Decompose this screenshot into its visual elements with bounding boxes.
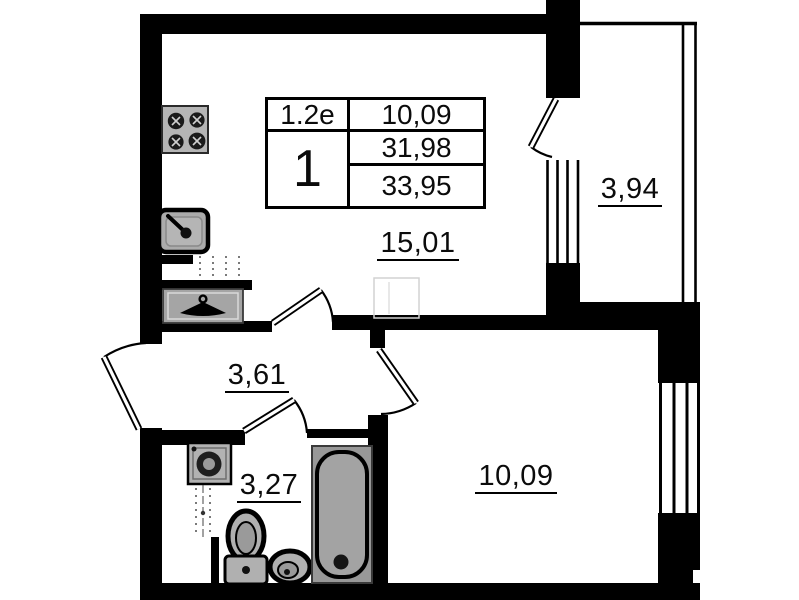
kitchen-counter-marks <box>200 256 239 277</box>
living-room-door <box>273 290 333 323</box>
wall-top-right-block <box>546 0 580 98</box>
hallway-area-label: 3,61 <box>215 359 299 393</box>
wall-bedroom-right-corner <box>658 565 693 600</box>
washing-machine-icon <box>188 443 231 484</box>
toilet-icon <box>225 511 267 584</box>
floor-plan: 1.2e 10,09 1 31,98 33,95 15,01 3,94 3,61… <box>0 0 799 600</box>
stove-icon <box>162 106 208 153</box>
pedestal-sink-icon <box>270 551 310 583</box>
ghost-outline <box>374 278 419 318</box>
bedroom-door <box>379 350 416 414</box>
area-row3-cell: 33,95 <box>350 166 483 206</box>
wall-bedroom-door-stub <box>370 315 385 348</box>
bathtub-icon <box>312 446 372 583</box>
balcony-area-label: 3,94 <box>592 173 668 207</box>
kitchen-sink-icon <box>159 210 208 252</box>
bathroom-plumbing-marks <box>196 485 210 540</box>
bathroom-area-label: 3,27 <box>227 469 311 503</box>
wall-bedroom-right-lower <box>658 513 700 570</box>
wall-top <box>140 14 580 34</box>
bedroom-area-label: 10,09 <box>464 460 568 494</box>
wardrobe <box>163 289 243 323</box>
wall-left-upper <box>140 14 162 344</box>
wall-bedroom-right-upper <box>658 330 700 383</box>
living-room-window <box>548 160 579 263</box>
living-kitchen-area-label: 15,01 <box>368 227 468 261</box>
wall-kitchen-counter-edge <box>160 255 193 264</box>
wall-bathroom-top-thin <box>307 429 368 438</box>
balcony-glazing <box>580 22 697 302</box>
floor-plan-drawing <box>0 0 799 600</box>
entrance-door <box>104 343 146 429</box>
wall-left-lower <box>140 428 162 600</box>
balcony-door <box>531 99 556 157</box>
bedroom-window <box>661 383 699 513</box>
area-row1-cell: 10,09 <box>350 100 483 132</box>
unit-type-cell: 1.2e <box>268 100 350 132</box>
area-row2-cell: 31,98 <box>350 132 483 166</box>
bathroom-door <box>244 400 307 433</box>
apartment-info-table: 1.2e 10,09 1 31,98 33,95 <box>265 97 486 209</box>
wall-hall-living-right <box>332 315 580 330</box>
wall-bathroom-partition <box>211 537 219 583</box>
wall-bottom <box>140 583 700 600</box>
rooms-count-cell: 1 <box>268 132 350 206</box>
